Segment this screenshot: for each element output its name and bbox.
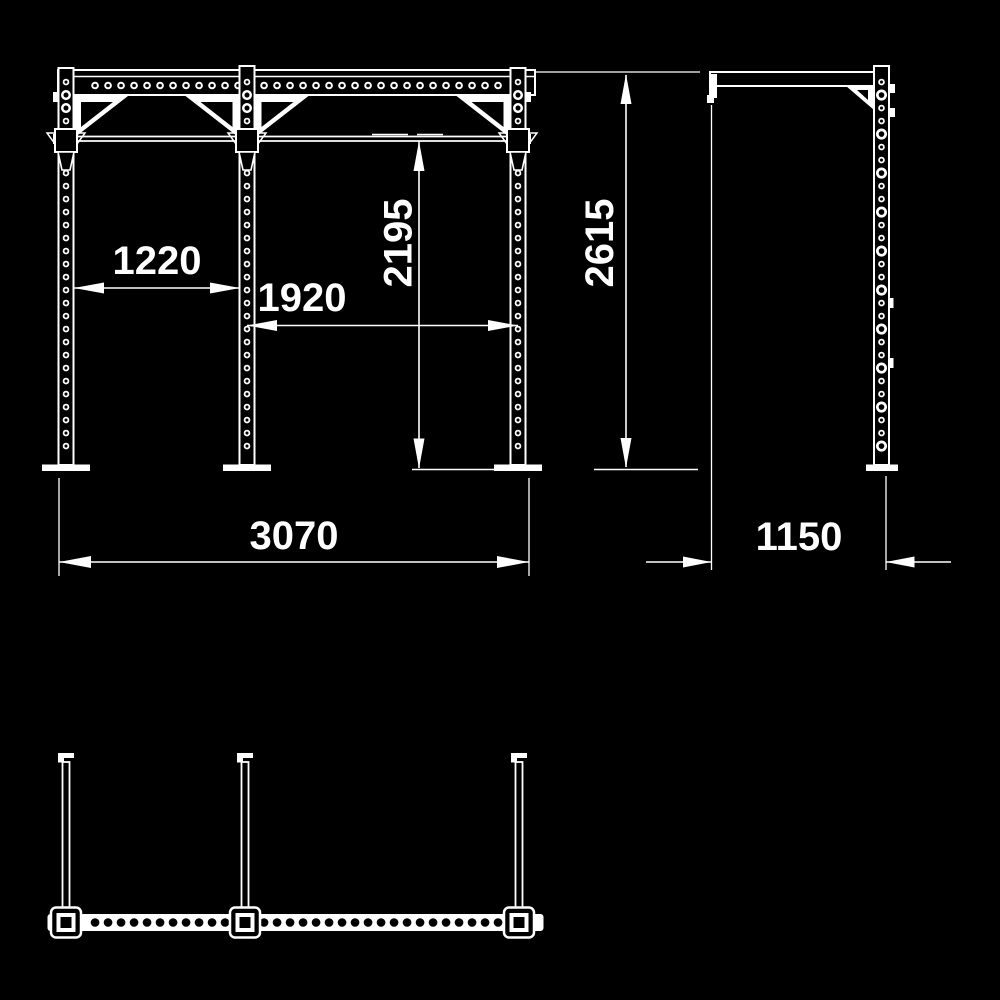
arrowhead	[683, 557, 712, 568]
side-foot	[866, 465, 898, 472]
dimensions: 1220 1920 2195 2615	[59, 72, 951, 576]
bar-collars	[47, 129, 537, 170]
arrowhead	[621, 438, 632, 468]
beam-end-caps	[58, 753, 527, 763]
dimension-label-depth: 1150	[756, 515, 843, 559]
rear-end-bracket	[707, 74, 717, 103]
front-top-beam	[58, 70, 535, 95]
collar-middle	[228, 129, 266, 170]
arrowhead	[59, 556, 91, 568]
dimension-left-bay: 1220	[74, 239, 240, 294]
dimension-depth: 1150	[646, 105, 951, 570]
arrowhead	[74, 283, 104, 294]
side-post	[866, 66, 898, 471]
arrowhead	[210, 283, 240, 294]
dimension-overall-height: 2615	[536, 72, 700, 470]
pullup-bar	[66, 135, 518, 142]
dimension-label-bar-height: 2195	[377, 199, 421, 288]
plan-depth-beams	[58, 753, 527, 909]
dimension-label-right-bay: 1920	[258, 276, 347, 320]
gusset-brackets	[74, 96, 511, 138]
side-top-beam	[707, 72, 874, 110]
drawing-canvas: 1220 1920 2195 2615	[0, 0, 1000, 1000]
plan-front-beam	[48, 914, 544, 931]
dimension-overall-width: 3070	[59, 478, 529, 576]
arrowhead	[497, 556, 529, 568]
arrowhead	[621, 74, 632, 104]
collar-left	[47, 129, 85, 170]
collar-right	[499, 129, 537, 170]
technical-drawing: 1220 1920 2195 2615	[0, 0, 1000, 1000]
dimension-label-overall-height: 2615	[578, 199, 622, 288]
side-view	[707, 66, 898, 471]
plan-view	[48, 753, 544, 938]
arrowhead	[414, 141, 425, 171]
arrowhead	[414, 439, 425, 469]
dimension-label-left-bay: 1220	[113, 239, 202, 283]
arrowhead	[886, 557, 915, 568]
dimension-label-overall-width: 3070	[250, 514, 339, 558]
